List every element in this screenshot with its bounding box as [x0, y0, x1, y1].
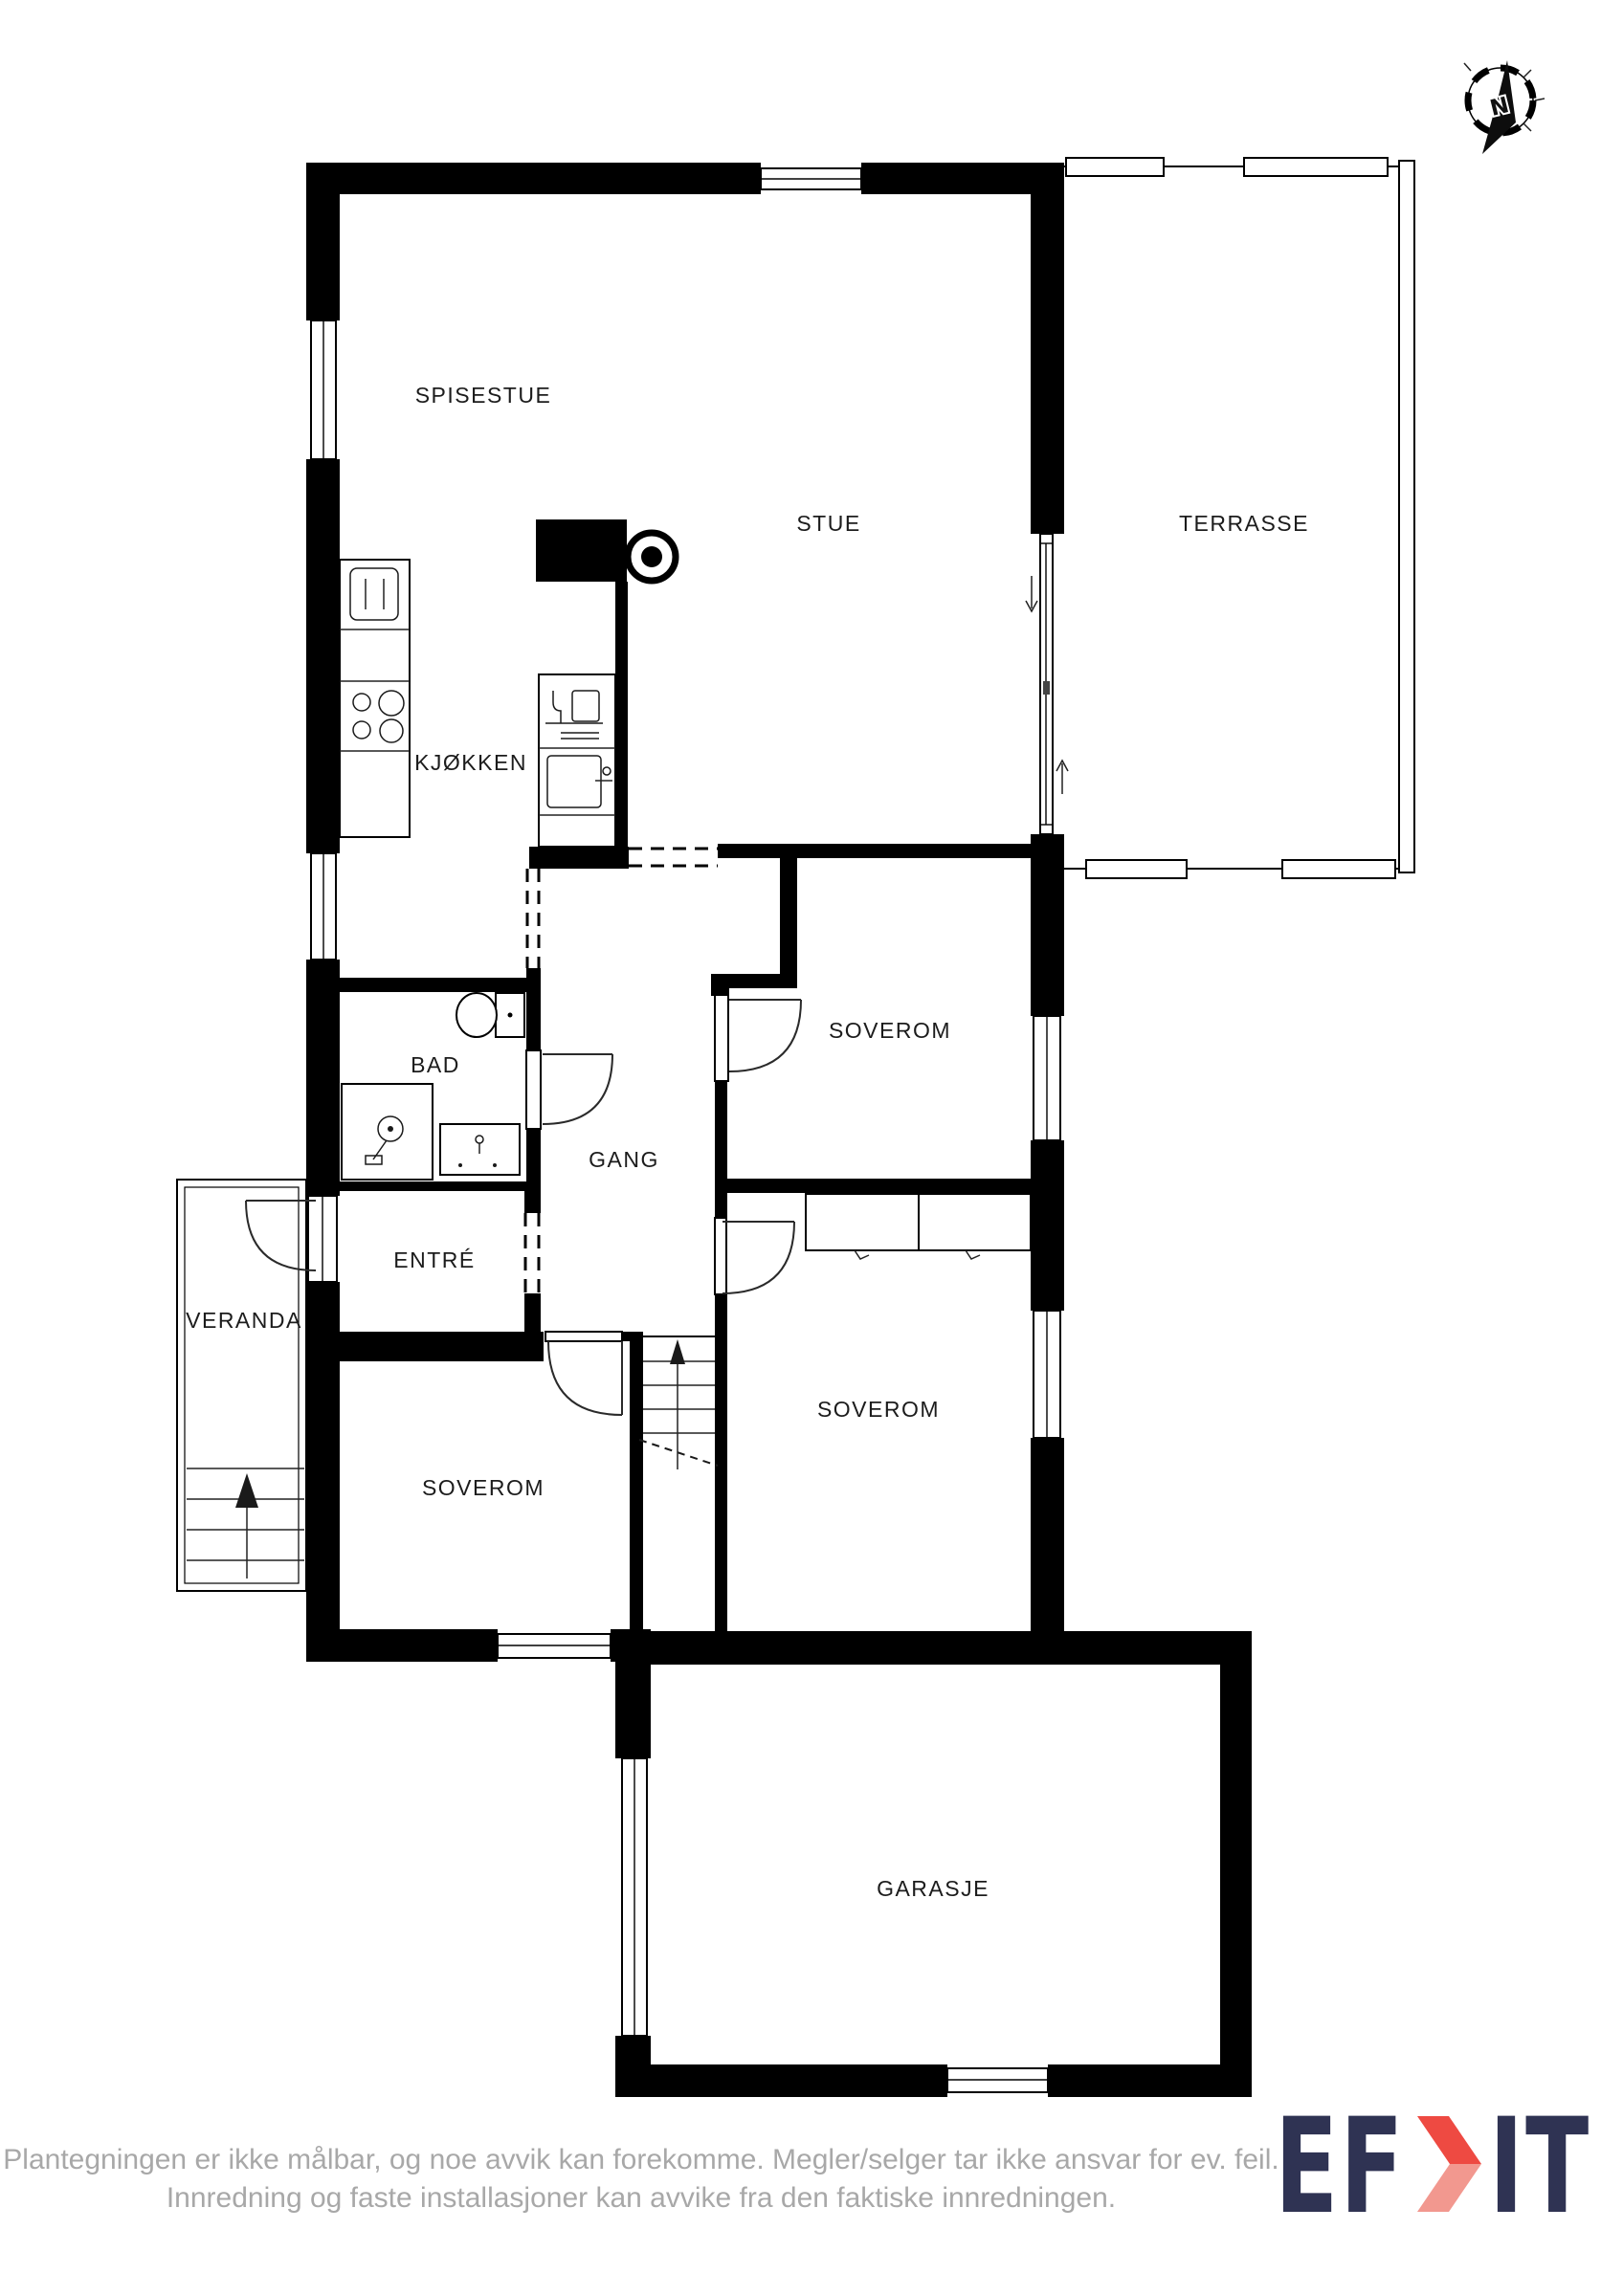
bathroom-fixtures [342, 993, 524, 1180]
window-soverom-sor-vest [498, 1634, 611, 1658]
logo-chevron-icon [1417, 2116, 1481, 2212]
room-label-veranda: VERANDA [186, 1308, 302, 1333]
room-label-entre: ENTRÉ [393, 1247, 475, 1272]
logo-text-ef: EF [1275, 2090, 1406, 2244]
stairs-up-arrow-icon [670, 1339, 685, 1364]
window-soverom-ost [1034, 1016, 1060, 1140]
room-label-terrasse: TERRASSE [1179, 511, 1309, 536]
arrow-up-icon [1056, 761, 1068, 794]
dashed-openings [525, 849, 718, 1293]
door-soverom-sor-ost [715, 1218, 794, 1294]
floorplan-page: N SPISESTUE STUE TERRASSE KJØKKEN BAD GA… [0, 0, 1623, 2296]
door-soverom-ost [715, 995, 801, 1081]
veranda-outline [177, 1180, 306, 1591]
disclaimer-line-1: Plantegningen er ikke målbar, og noe avv… [0, 2141, 1282, 2179]
wardrobe [806, 1194, 1031, 1259]
shower-icon [342, 1084, 433, 1180]
disclaimer-line-2: Innredning og faste installasjoner kan a… [0, 2179, 1282, 2218]
room-label-spisestue: SPISESTUE [415, 383, 552, 408]
kitchen-fixtures [340, 560, 615, 847]
window-spisestue [311, 320, 336, 459]
floorplan-drawing: N SPISESTUE STUE TERRASSE KJØKKEN BAD GA… [0, 0, 1623, 2296]
door-bad [526, 1050, 612, 1129]
window-soverom-sor-ost [1034, 1311, 1060, 1438]
toilet-icon [456, 993, 524, 1037]
bathroom-sink-icon [440, 1124, 520, 1175]
room-label-garasje: GARASJE [877, 1876, 989, 1901]
room-label-stue: STUE [796, 511, 860, 536]
room-label-kjokken: KJØKKEN [414, 750, 527, 775]
room-label-soverom-sor-ost: SOVEROM [817, 1397, 940, 1422]
fireplace-icon [536, 519, 676, 582]
garage-door-opening [947, 2068, 1048, 2092]
room-label-soverom-ost: SOVEROM [829, 1018, 951, 1043]
window-kjokken [311, 853, 336, 960]
sliding-door-terrasse [1026, 534, 1068, 834]
compass-icon: N [1464, 60, 1545, 154]
staircase [639, 1336, 718, 1469]
room-label-bad: BAD [411, 1052, 460, 1077]
logo-text-it: IT [1489, 2090, 1590, 2244]
window-top [761, 168, 861, 189]
arrow-down-icon [1026, 576, 1037, 611]
footer-disclaimer: Plantegningen er ikke målbar, og noe avv… [0, 2141, 1282, 2218]
door-soverom-sor-vest [545, 1332, 622, 1415]
window-garasje [622, 1758, 647, 2036]
room-label-gang: GANG [589, 1147, 659, 1172]
room-label-soverom-sor-vest: SOVEROM [422, 1475, 545, 1500]
efkt-logo: EF IT [1275, 2090, 1590, 2244]
